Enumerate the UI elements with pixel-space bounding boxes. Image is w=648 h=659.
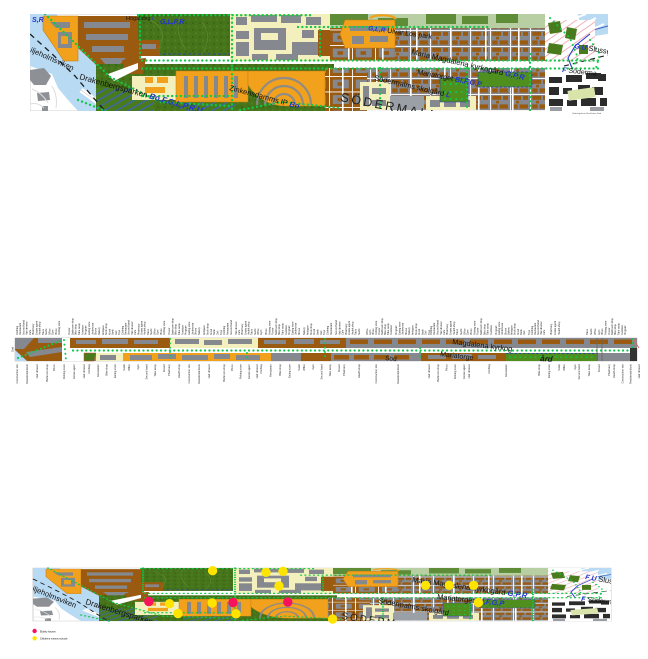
svg-text:Cafe: Cafe bbox=[543, 329, 546, 335]
svg-text:Furniture: Furniture bbox=[490, 324, 493, 335]
svg-text:Sushi: Sushi bbox=[358, 328, 361, 335]
svg-text:Gym: Gym bbox=[573, 364, 577, 369]
svg-text:Construction site: Construction site bbox=[374, 364, 378, 384]
svg-text:Pharmacy: Pharmacy bbox=[607, 364, 611, 376]
svg-text:Office: Office bbox=[562, 364, 566, 371]
svg-text:Tatoo: Tatoo bbox=[456, 328, 459, 335]
svg-text:Childrens nursery schools: Childrens nursery schools bbox=[40, 638, 68, 641]
svg-text:Photo: Photo bbox=[230, 364, 234, 371]
svg-text:Bathroom shop: Bathroom shop bbox=[436, 364, 440, 382]
svg-text:Take away: Take away bbox=[153, 364, 157, 377]
svg-text:Hair dresser: Hair dresser bbox=[255, 364, 259, 378]
svg-text:Bike shop: Bike shop bbox=[105, 364, 109, 376]
svg-text:Fishing store: Fishing store bbox=[62, 364, 66, 379]
svg-text:Elderly houses: Elderly houses bbox=[40, 630, 56, 633]
svg-text:Restaurant: Restaurant bbox=[504, 364, 508, 377]
svg-text:Bakery: Bakery bbox=[98, 326, 101, 335]
svg-text:Eating store: Eating store bbox=[113, 364, 117, 378]
svg-text:Sushi: Sushi bbox=[590, 328, 593, 335]
svg-text:Deli: Deli bbox=[523, 330, 526, 335]
svg-text:Fishing store: Fishing store bbox=[58, 320, 61, 335]
svg-text:Sushi: Sushi bbox=[122, 364, 126, 371]
svg-text:Pharmacy: Pharmacy bbox=[550, 323, 553, 335]
svg-text:Office: Office bbox=[594, 328, 597, 335]
svg-text:Restaurant: Restaurant bbox=[330, 322, 333, 335]
svg-text:Fishing store: Fishing store bbox=[163, 320, 166, 335]
svg-text:Gym: Gym bbox=[260, 330, 263, 335]
svg-text:Graf: Graf bbox=[11, 347, 15, 352]
svg-text:Program: Program bbox=[624, 325, 627, 335]
svg-text:Sushi: Sushi bbox=[557, 364, 561, 371]
svg-text:Pharmacy: Pharmacy bbox=[342, 364, 346, 376]
svg-text:Eating store: Eating store bbox=[288, 364, 292, 378]
svg-text:Hair dresser: Hair dresser bbox=[427, 364, 431, 378]
svg-text:Health shop: Health shop bbox=[558, 321, 561, 335]
svg-text:Residential block: Residential block bbox=[197, 363, 201, 383]
svg-text:Construction site: Construction site bbox=[15, 364, 19, 384]
svg-text:Estate agent: Estate agent bbox=[72, 364, 76, 379]
svg-text:Hair dresser: Hair dresser bbox=[207, 364, 211, 378]
svg-text:Residential block: Residential block bbox=[25, 363, 29, 383]
svg-text:Bike shop: Bike shop bbox=[537, 364, 541, 376]
svg-text:Health shop: Health shop bbox=[612, 364, 616, 378]
svg-text:Second hand: Second hand bbox=[230, 320, 233, 335]
svg-text:G,L,P,R: G,L,P,R bbox=[160, 19, 184, 26]
svg-text:Second hand: Second hand bbox=[320, 364, 324, 380]
svg-text:ård: ård bbox=[540, 354, 554, 364]
svg-text:Construction site: Construction site bbox=[187, 364, 191, 384]
svg-text:Söd: Söd bbox=[385, 355, 398, 363]
svg-text:Shoes: Shoes bbox=[298, 327, 301, 335]
svg-text:Construction site: Construction site bbox=[620, 364, 624, 384]
svg-text:Hair dresser: Hair dresser bbox=[82, 364, 86, 378]
svg-text:Health shop: Health shop bbox=[177, 364, 181, 378]
svg-text:Restaurant: Restaurant bbox=[96, 364, 100, 377]
svg-text:Estate agent: Estate agent bbox=[554, 321, 557, 335]
svg-text:Clothing: Clothing bbox=[259, 364, 263, 374]
svg-text:Pharmacy: Pharmacy bbox=[167, 364, 171, 376]
svg-text:Furniture: Furniture bbox=[390, 324, 393, 335]
svg-text:Sushi: Sushi bbox=[297, 364, 301, 371]
svg-text:Bathroom shop: Bathroom shop bbox=[45, 364, 49, 382]
svg-text:Bike shop: Bike shop bbox=[278, 364, 282, 376]
svg-text:Office: Office bbox=[127, 364, 131, 371]
svg-text:Tatoo: Tatoo bbox=[586, 328, 589, 335]
svg-text:Residential block: Residential block bbox=[629, 363, 633, 383]
svg-text:Fishing store: Fishing store bbox=[453, 364, 457, 379]
svg-text:Clothing: Clothing bbox=[487, 364, 491, 374]
svg-text:Second hand: Second hand bbox=[577, 364, 581, 380]
svg-text:Hair dresser: Hair dresser bbox=[467, 364, 471, 378]
svg-text:Underlagskarta Stockholms Stad: Underlagskarta Stockholms Stad bbox=[572, 112, 601, 115]
svg-text:Photo: Photo bbox=[52, 364, 56, 371]
svg-text:Estate agent: Estate agent bbox=[462, 364, 466, 379]
svg-text:Bathroom shop: Bathroom shop bbox=[222, 364, 226, 382]
svg-text:Hair dresser: Hair dresser bbox=[637, 364, 641, 378]
svg-text:Flower: Flower bbox=[337, 364, 341, 372]
svg-text:Gym: Gym bbox=[136, 364, 140, 369]
svg-text:Fishing store: Fishing store bbox=[239, 364, 243, 379]
svg-text:Health shop: Health shop bbox=[357, 364, 361, 378]
svg-text:Bakery: Bakery bbox=[198, 326, 201, 335]
svg-text:Estate agent: Estate agent bbox=[247, 364, 251, 379]
svg-text:Take away: Take away bbox=[587, 364, 591, 377]
svg-text:Residential block: Residential block bbox=[396, 363, 400, 383]
svg-text:Eating store: Eating store bbox=[547, 364, 551, 378]
svg-text:Gym: Gym bbox=[311, 364, 315, 369]
svg-text:Flower: Flower bbox=[162, 364, 166, 372]
svg-text:Photo: Photo bbox=[445, 364, 449, 371]
svg-text:Second hand: Second hand bbox=[145, 364, 149, 380]
svg-text:Flower: Flower bbox=[597, 364, 601, 372]
svg-text:Take away: Take away bbox=[328, 364, 332, 377]
svg-text:Högalidsg L: Högalidsg L bbox=[126, 16, 155, 22]
svg-text:S,R: S,R bbox=[32, 17, 44, 24]
svg-text:Clothing: Clothing bbox=[87, 364, 91, 374]
svg-text:Restaurant: Restaurant bbox=[269, 364, 273, 377]
svg-text:Hair dresser: Hair dresser bbox=[35, 364, 39, 378]
svg-text:Office: Office bbox=[302, 364, 306, 371]
